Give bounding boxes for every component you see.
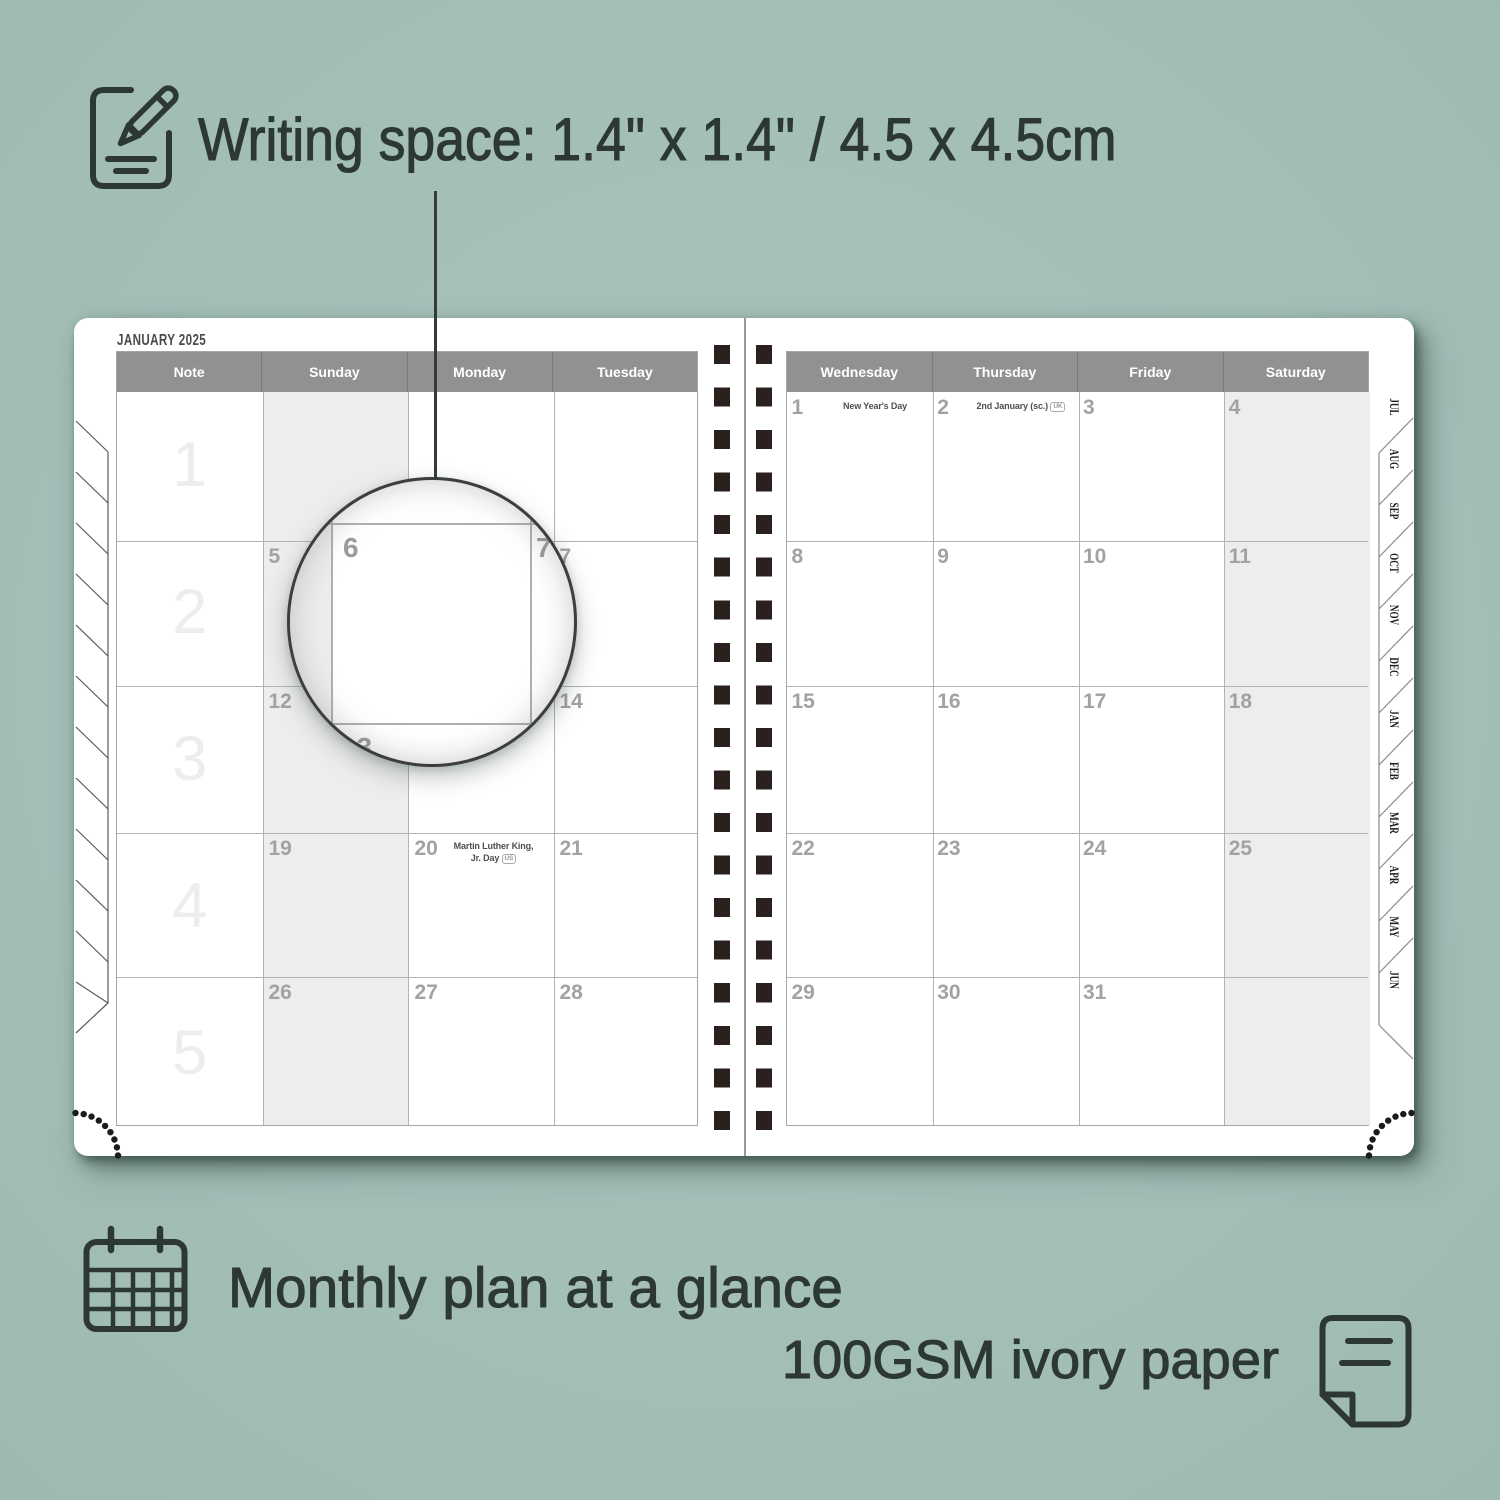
svg-text:FEB: FEB xyxy=(1387,762,1401,780)
svg-text:OCT: OCT xyxy=(1387,553,1401,573)
svg-text:MAY: MAY xyxy=(1387,917,1401,938)
svg-text:APR: APR xyxy=(1387,866,1401,885)
svg-text:JAN: JAN xyxy=(1387,710,1401,728)
svg-text:MAR: MAR xyxy=(1387,812,1401,834)
svg-text:NOV: NOV xyxy=(1387,605,1401,625)
svg-text:AUG: AUG xyxy=(1387,449,1401,469)
svg-text:JUL: JUL xyxy=(1387,398,1401,416)
svg-text:JUN: JUN xyxy=(1387,971,1401,989)
svg-text:DEC: DEC xyxy=(1387,657,1401,676)
svg-text:SEP: SEP xyxy=(1387,503,1401,520)
